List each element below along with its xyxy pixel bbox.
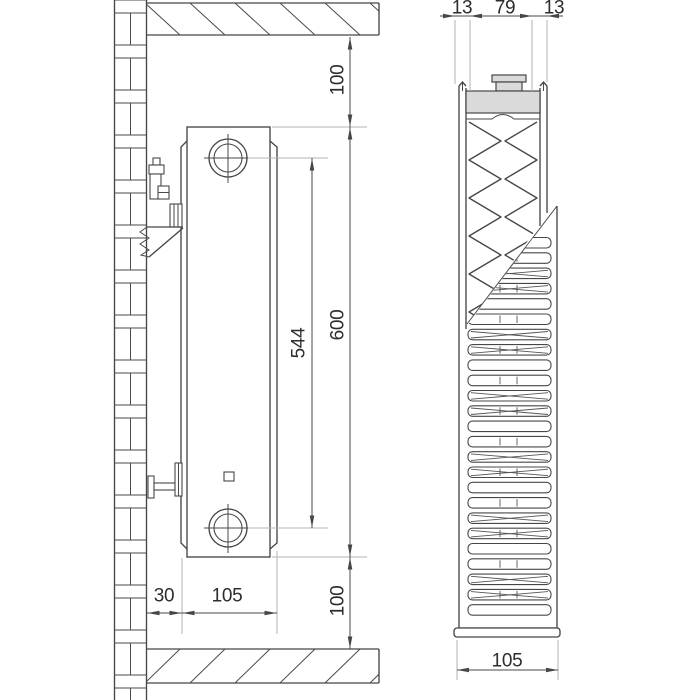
hatch-line [190,649,225,683]
base-plate [454,628,560,637]
radiator-end-section-view [454,75,560,637]
vent-cap-body [496,82,522,91]
lower-bracket-pin [154,483,175,490]
radiator-installation-drawing: 100 544 600 100 30 105 13 79 13 105 [0,0,700,700]
arrowhead [520,14,532,19]
floor-hatch [100,649,405,683]
dim-label-radiator-height: 600 [328,310,349,341]
dim-label-overall-depth: 105 [492,651,523,672]
dim-label-core-width: 79 [495,0,516,19]
hatch-line [190,3,225,35]
vent-slot [468,544,551,555]
vent-slot [468,498,551,509]
bracket-bolt-head [149,165,164,174]
front-panel-profile [270,141,277,549]
radiator-side-view [181,127,277,557]
vent-slot [468,314,551,325]
arrowhead [183,611,195,616]
floor [100,649,405,683]
dim-label-radiator-depth: 105 [212,586,243,607]
arrowhead [348,128,353,140]
hatch-line [325,3,360,35]
vent-slot [468,436,551,447]
ceiling-hatch [100,3,405,35]
vent-slot-grille [468,238,551,616]
hatch-line [325,649,360,683]
arrowhead [457,668,469,673]
vent-slot [468,360,551,371]
radiator-body [187,127,270,557]
dim-label-top-clearance: 100 [328,65,349,96]
brick-wall [115,0,147,700]
hatch-line [235,649,270,683]
vent-slot [468,605,551,616]
hatch-line [100,3,135,35]
arrowhead [546,668,558,673]
hatch-line [100,649,135,683]
hatch-line [145,649,180,683]
vent-slot [468,299,551,310]
dim-label-front-panel: 13 [452,0,473,19]
dim-label-bottom-clearance: 100 [328,586,349,617]
arrowhead [348,545,353,557]
arrowhead [265,611,277,616]
arrowhead [348,637,353,649]
hatch-line [235,3,270,35]
drain-plug-square [224,472,234,481]
dim-label-connection-spacing: 544 [289,327,310,359]
lower-bracket-plate [148,476,154,498]
bracket-bolt-stem [153,158,160,165]
hatch-line [280,649,315,683]
arrowhead [148,611,160,616]
vent-slot [468,482,551,493]
bracket-gusset-diagonal [149,228,183,257]
arrowhead [348,38,353,50]
arrowhead [348,115,353,127]
technical-drawing-canvas: 100 544 600 100 30 105 13 79 13 105 [0,0,700,700]
hatch-line [145,3,180,35]
vent-slot [468,559,551,570]
top-header-section [466,91,540,113]
vent-slot [468,421,551,432]
arrowhead [348,558,353,570]
arrowhead [310,159,315,171]
hatch-line [370,3,405,35]
fin-top-wave [466,115,540,120]
vent-cap-flange [492,75,526,82]
dim-label-wall-distance: 30 [154,586,175,607]
hatch-line [370,649,405,683]
arrowhead [170,611,182,616]
ceiling [100,3,405,35]
bracket-hook [170,204,182,227]
vent-slot [468,375,551,386]
lower-mounting-bracket [148,463,182,498]
dim-label-back-panel: 13 [544,0,565,19]
hatch-line [280,3,315,35]
arrowhead [310,516,315,528]
brick-pattern [115,0,146,700]
bracket-wall-anchor-serration [140,227,149,257]
